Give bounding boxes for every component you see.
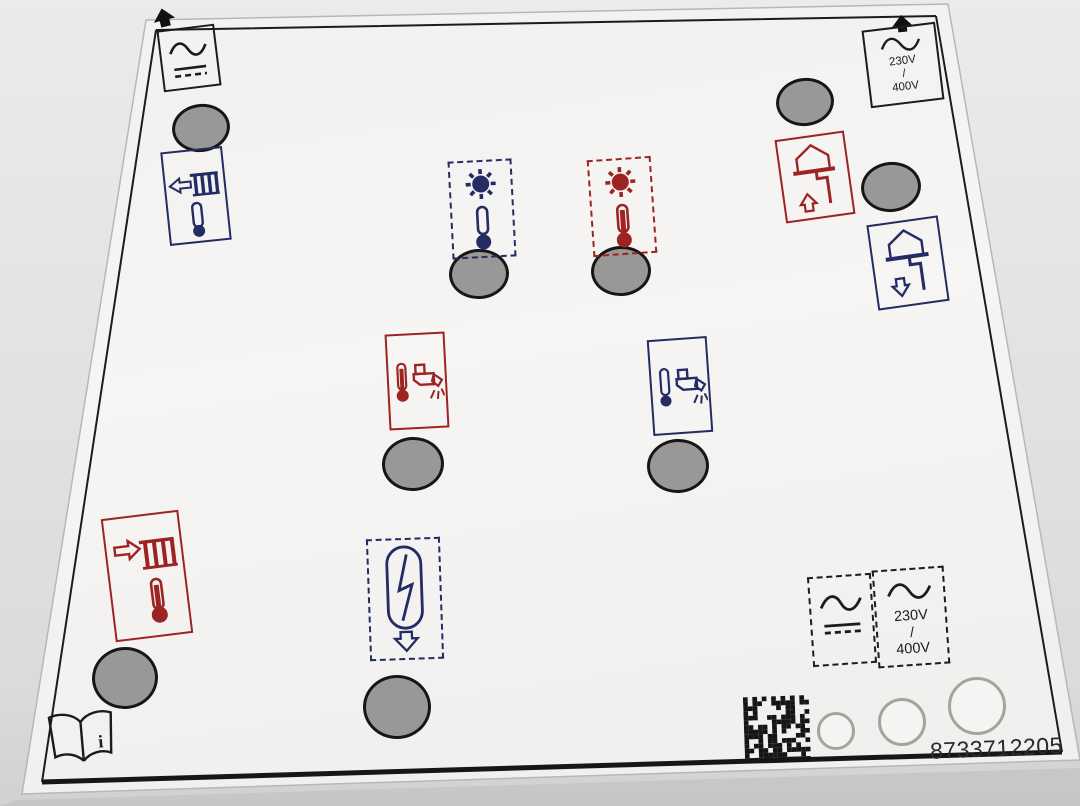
voltage-supply-box-top: 230V / 400V [862,22,945,108]
voltage-value-400: 400V [896,640,931,659]
radiator-flow-hot-box [101,510,194,643]
radiator-return-cold-icon [164,150,229,241]
manual-book-icon: i [43,705,120,775]
sine-wave-icon [877,31,923,58]
cold-water-tap-icon [650,338,710,430]
datamatrix-code [743,695,815,763]
solar-cold-box [447,158,516,259]
house-flow-box [774,131,855,224]
cold-water-tap-box [647,336,714,436]
solar-hot-box [587,156,658,257]
punch-ring-small [817,712,855,750]
label-sheet-photo: 230V / 400V [0,0,1080,806]
book-info-mark: i [97,731,104,751]
ac-power-dashed-icon [815,585,869,648]
solar-hot-icon [591,158,653,252]
radiator-flow-hot-icon [105,516,188,638]
voltage-supply-box-bottom: 230V / 400V [872,566,951,669]
house-return-icon [871,220,945,306]
punch-ring-large [948,677,1006,735]
voltage-separator: / [910,625,915,642]
voltage-value-400: 400V [892,80,920,96]
hot-water-tap-icon [388,334,447,425]
ac-power-symbol-box [156,24,221,93]
house-return-box [866,215,949,310]
solar-cold-icon [452,161,513,254]
ac-power-icon [163,33,215,88]
voltage-value-230: 230V [893,607,928,626]
ac-power-dashed-box [807,573,877,667]
voltage-separator: / [902,68,907,82]
radiator-return-cold-box [160,146,231,246]
hot-water-tap-box [385,331,450,430]
sine-wave-icon [883,576,935,605]
house-flow-icon [779,135,851,219]
compressor-box [366,537,444,662]
compressor-icon [369,539,441,655]
drill-hole-marker [363,675,431,739]
sheet-background [0,0,1080,806]
punch-ring-medium [878,698,926,746]
